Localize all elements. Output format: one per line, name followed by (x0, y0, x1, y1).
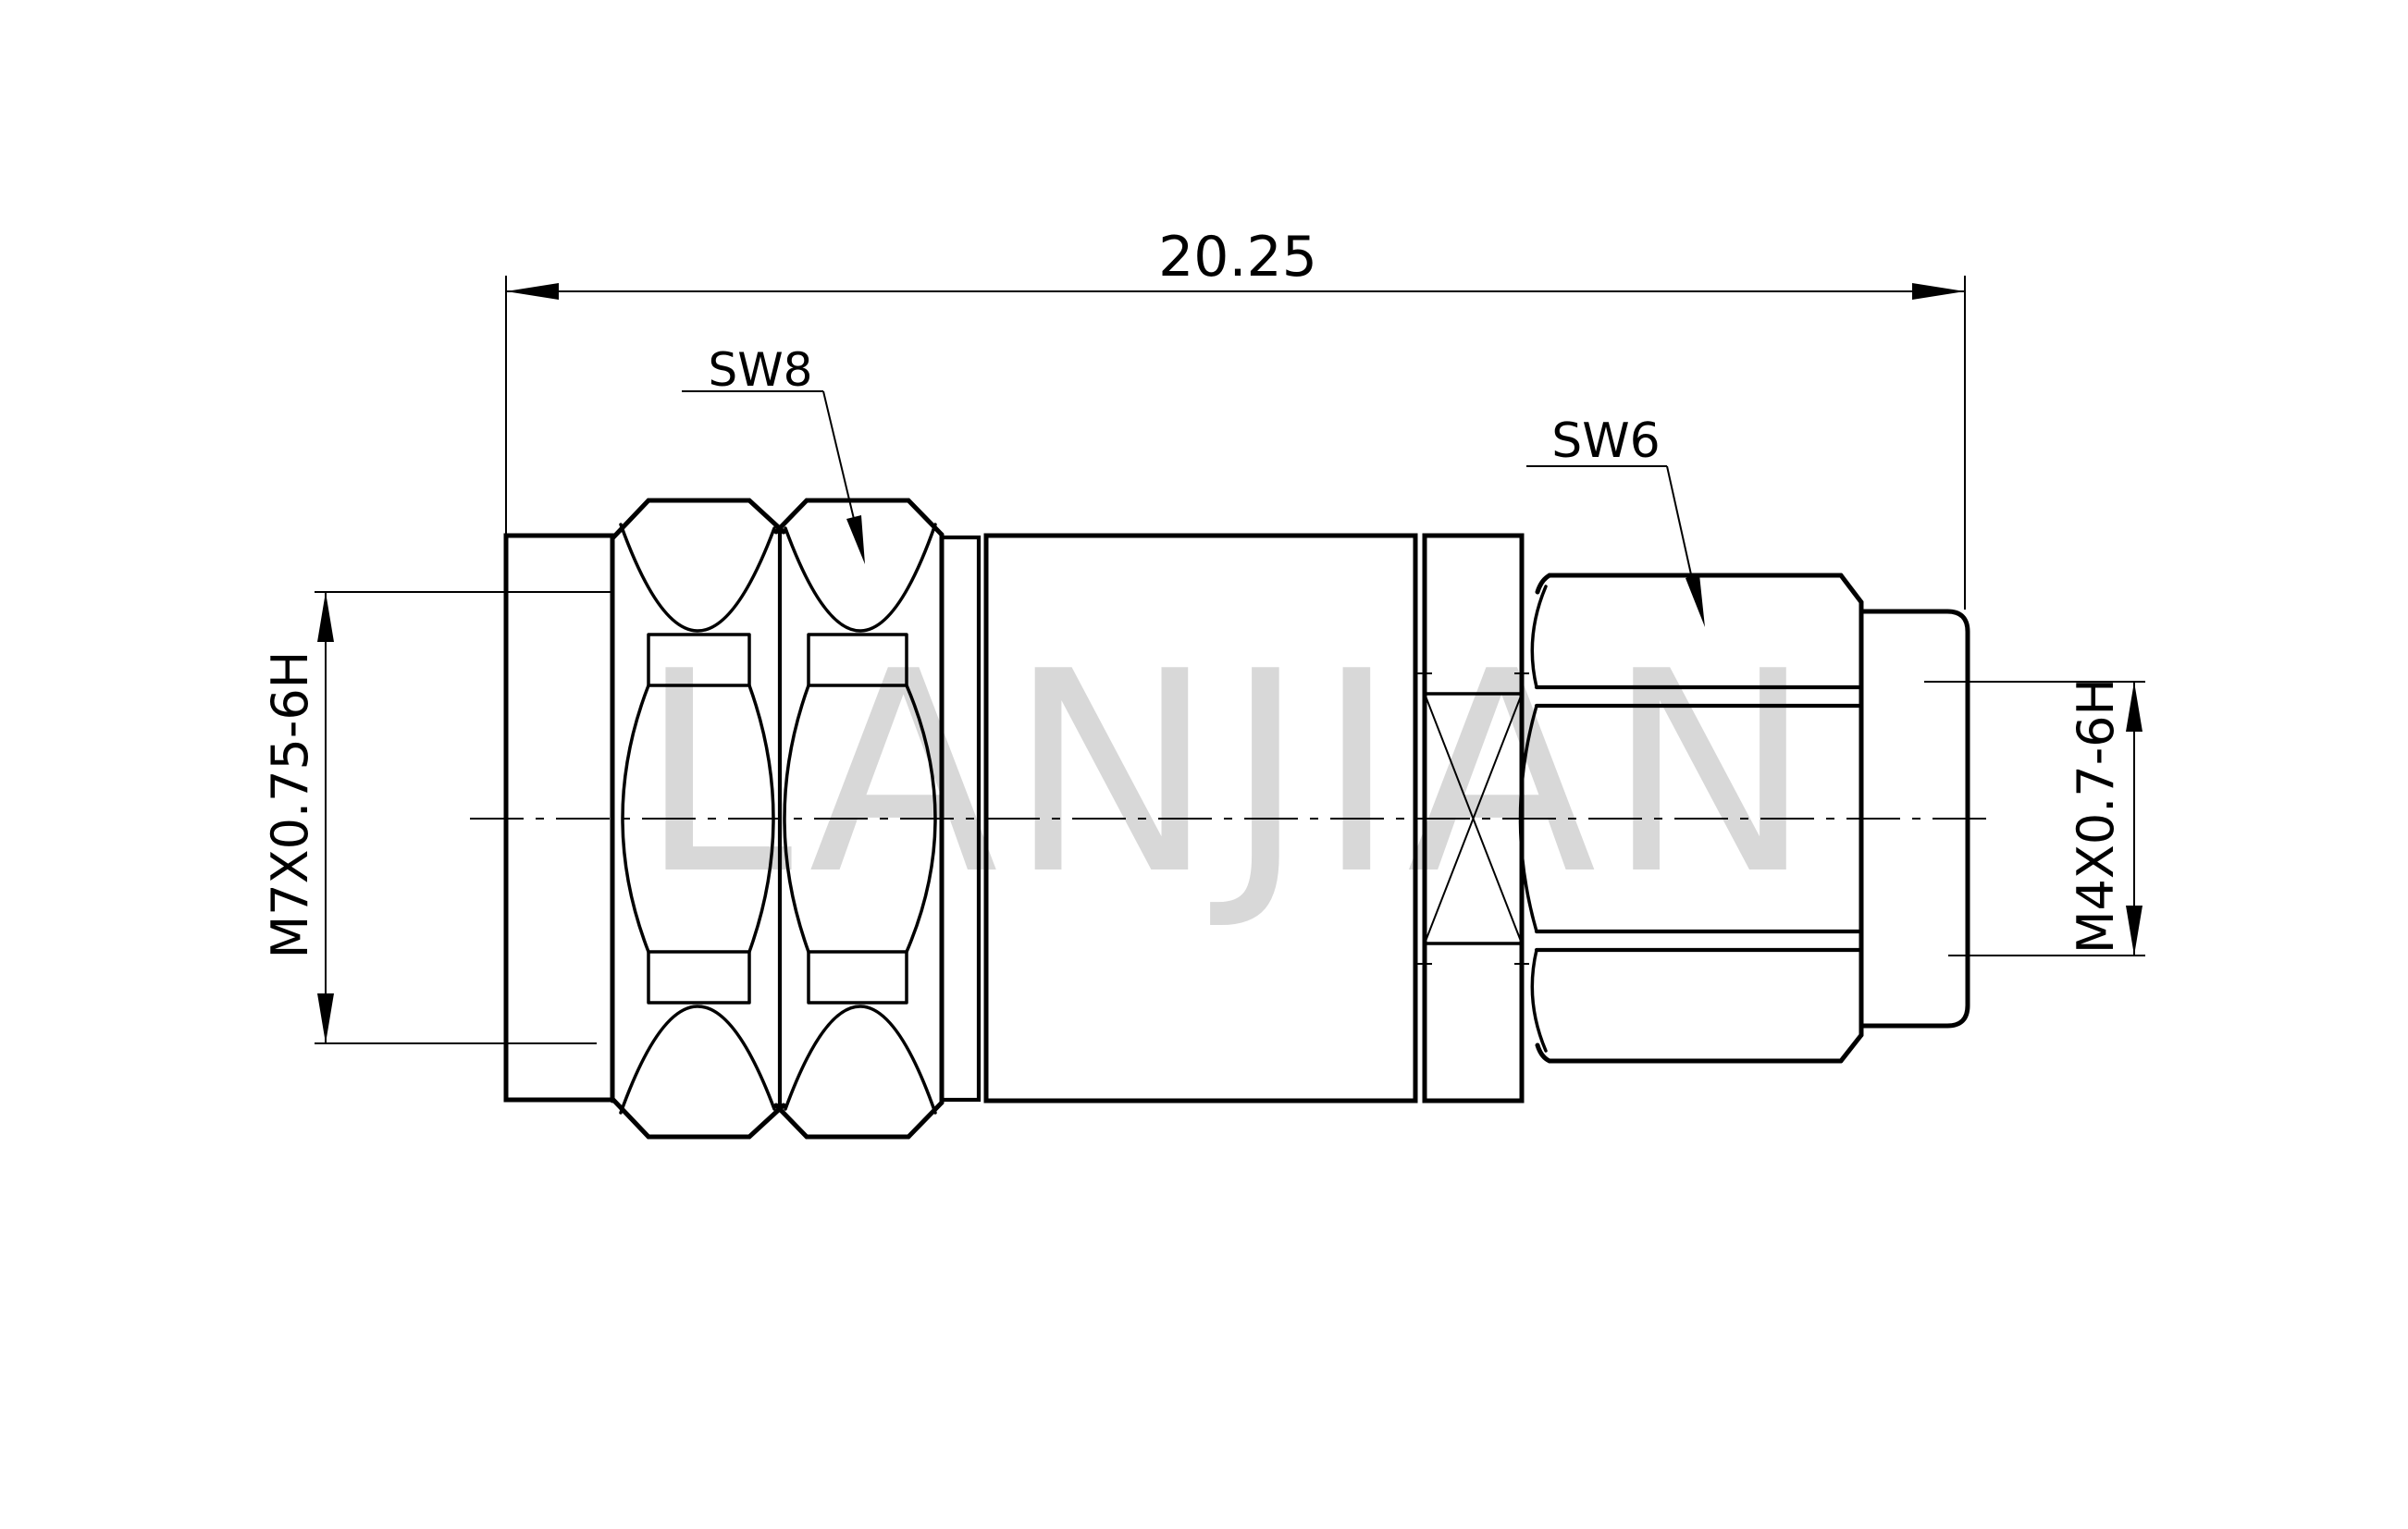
dim-arrow-up (2126, 682, 2143, 732)
adapter-drawing-canvas: LANJIAN (0, 0, 2408, 1529)
right-thread-value: M4X0.7-6H (2067, 678, 2125, 954)
dimension-left-thread: M7X0.75-6H (261, 592, 334, 1043)
sw8-label: SW8 (709, 343, 813, 397)
overall-length-value: 20.25 (1158, 225, 1317, 290)
dim-arrow-left (506, 283, 559, 300)
dim-arrow-down (317, 993, 334, 1043)
leader-arrow (846, 515, 865, 564)
dimension-right-thread: M4X0.7-6H (1924, 678, 2145, 956)
watermark-text: LANJIAN (638, 612, 1822, 935)
leader-sw6: SW6 (1526, 413, 1705, 627)
dim-arrow-up (317, 592, 334, 642)
left-thread-value: M7X0.75-6H (261, 651, 319, 959)
dimension-overall-length: 20.25 (506, 225, 1965, 610)
sw6-label: SW6 (1551, 413, 1661, 469)
dim-arrow-down (2126, 906, 2143, 956)
dim-arrow-right (1912, 283, 1965, 300)
technical-drawing-sheet: LANJIAN (0, 0, 2408, 1529)
